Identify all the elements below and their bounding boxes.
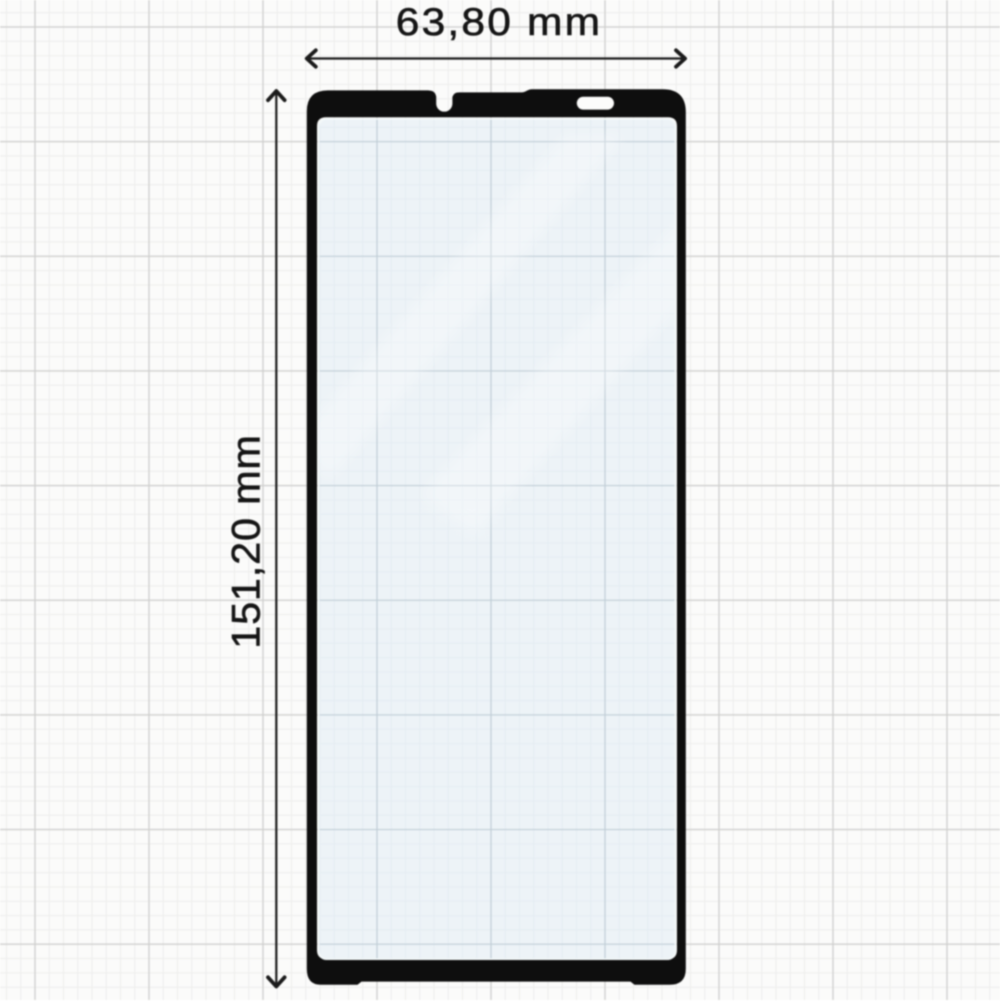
svg-text:151,20 mm: 151,20 mm <box>223 434 268 648</box>
svg-text:63,80 mm: 63,80 mm <box>396 0 602 43</box>
